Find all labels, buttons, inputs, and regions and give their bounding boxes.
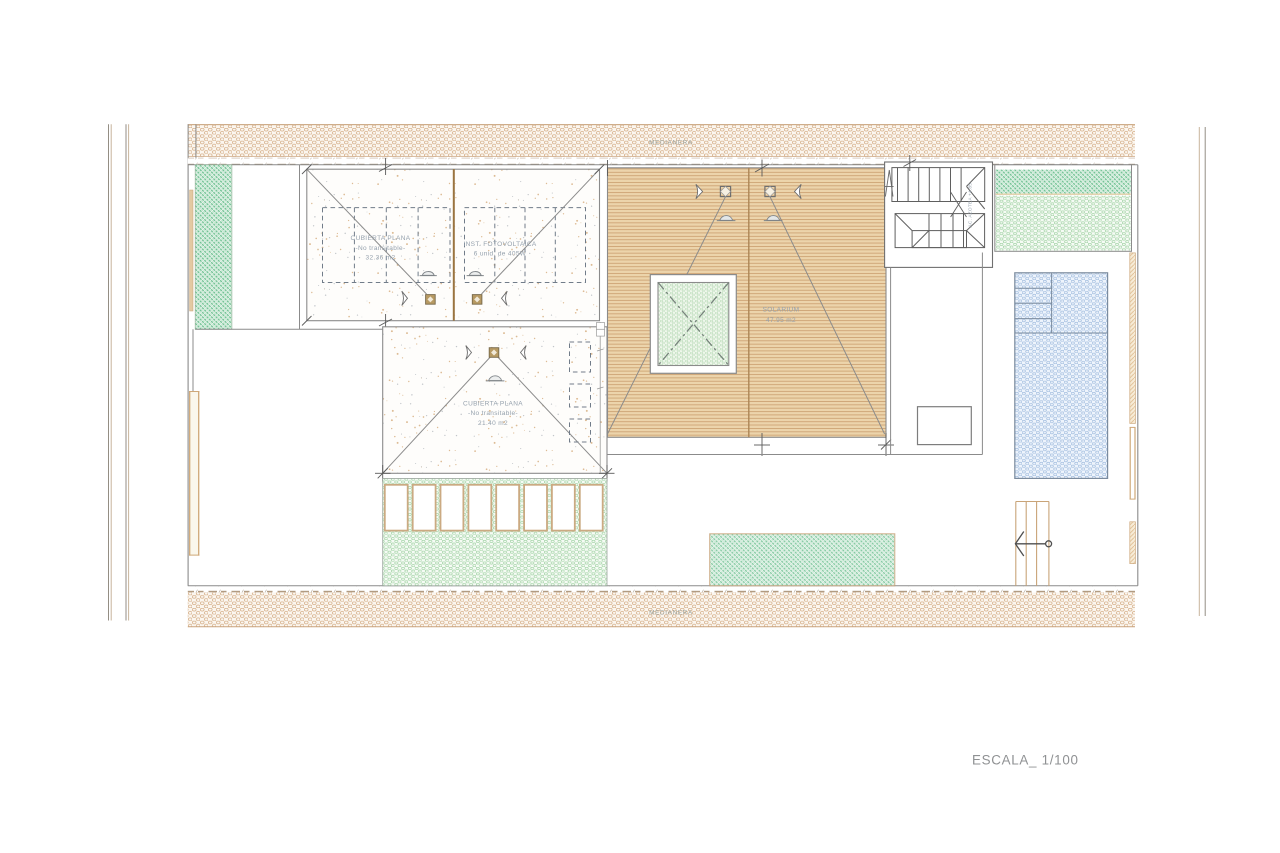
svg-text:47.95 m2: 47.95 m2: [766, 317, 796, 324]
svg-text:AC. AZOTEA +4.85: AC. AZOTEA +4.85: [968, 183, 974, 228]
svg-text:SOLARIUM: SOLARIUM: [763, 307, 800, 314]
svg-text:6 unid. de 405W: 6 unid. de 405W: [474, 250, 527, 257]
svg-text:ESCALA_ 1/100: ESCALA_ 1/100: [972, 753, 1079, 768]
svg-text:INST. FOTOVOLTAICA: INST. FOTOVOLTAICA: [463, 241, 536, 248]
svg-text:CUBIERTA PLANA: CUBIERTA PLANA: [351, 235, 411, 242]
svg-text:CUBIERTA PLANA: CUBIERTA PLANA: [463, 401, 523, 408]
svg-text:-No transitable-: -No transitable-: [468, 410, 518, 417]
svg-text:21.40 m2: 21.40 m2: [478, 420, 508, 427]
svg-text:MEDIANERA: MEDIANERA: [649, 140, 693, 147]
svg-text:32.36 m2: 32.36 m2: [366, 254, 396, 261]
svg-text:MEDIANERA: MEDIANERA: [649, 610, 693, 617]
svg-text:-No transitable-: -No transitable-: [355, 245, 405, 252]
